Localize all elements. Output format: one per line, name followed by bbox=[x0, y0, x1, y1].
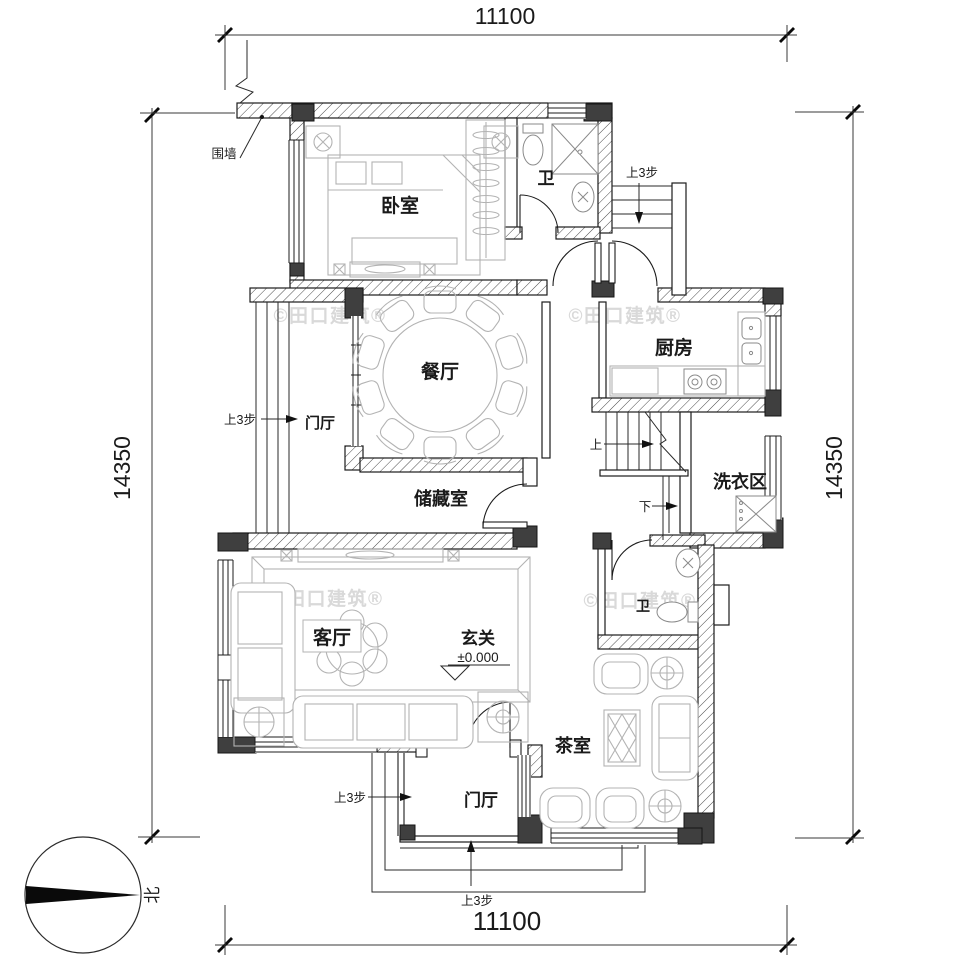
shower bbox=[552, 124, 598, 174]
exterior-shaft bbox=[714, 585, 729, 625]
door-storage bbox=[483, 484, 527, 528]
toilet-top bbox=[523, 135, 543, 165]
window-tea-south bbox=[551, 827, 678, 844]
label-dining: 餐厅 bbox=[421, 360, 459, 383]
dim-left-value: 14350 bbox=[109, 436, 135, 500]
label-bedroom: 卧室 bbox=[381, 194, 419, 217]
door-corridor-left bbox=[553, 241, 601, 286]
furniture-living bbox=[231, 549, 530, 748]
label-kitchen: 厨房 bbox=[655, 336, 693, 359]
wardrobe bbox=[466, 120, 505, 260]
window-kitchen-east bbox=[764, 316, 782, 390]
north-compass: 北 bbox=[25, 837, 162, 953]
staircase bbox=[600, 412, 688, 540]
label-steps-bottom-left: 上3步 bbox=[334, 791, 366, 805]
tv-cabinet bbox=[281, 549, 459, 562]
screen-dining-west bbox=[351, 316, 361, 446]
door-bath-lower bbox=[612, 540, 652, 580]
break-symbol bbox=[236, 40, 253, 103]
label-living: 客厅 bbox=[313, 626, 351, 649]
tea-armchair-top bbox=[594, 654, 648, 694]
door-corridor-right bbox=[609, 241, 657, 286]
toilet-tank-top bbox=[523, 124, 543, 133]
door-bath-top bbox=[520, 195, 558, 233]
label-entry: 玄关 bbox=[461, 628, 495, 648]
tea-armchair-bottom-1 bbox=[540, 788, 590, 828]
fixtures-bath-top bbox=[523, 124, 598, 212]
tea-plant-top bbox=[651, 657, 683, 689]
label-north: 北 bbox=[143, 887, 162, 904]
label-steps-bottom-center: 上3步 bbox=[461, 894, 493, 908]
toilet-tank-lower bbox=[688, 602, 698, 622]
label-stairs-up: 上 bbox=[590, 438, 603, 452]
label-tea-room: 茶室 bbox=[555, 735, 591, 756]
stove bbox=[684, 369, 726, 394]
dimension-bottom: 11100 bbox=[215, 905, 797, 955]
bed-bench bbox=[352, 238, 457, 264]
dimension-top: 11100 bbox=[215, 3, 797, 90]
label-fence: 围墙 bbox=[211, 147, 236, 161]
label-foyer-left: 门厅 bbox=[305, 414, 335, 432]
dim-bottom-value: 11100 bbox=[473, 906, 541, 936]
label-elevation: ±0.000 bbox=[457, 650, 498, 665]
dim-right-value: 14350 bbox=[821, 436, 847, 500]
tea-plant-bottom bbox=[649, 790, 681, 822]
window-foyer-east bbox=[517, 755, 531, 817]
label-foyer-bottom: 门厅 bbox=[464, 790, 498, 810]
dim-top-value: 11100 bbox=[475, 3, 536, 29]
label-bath-top: 卫 bbox=[538, 169, 555, 188]
fence-wall bbox=[237, 103, 292, 118]
fixtures-bath-lower bbox=[657, 549, 700, 622]
kitchen-cabinet bbox=[612, 368, 658, 394]
floor-plan-page: 11100 11100 14350 14350 ©田口建筑® ©田口建筑® ©田… bbox=[0, 0, 960, 960]
tea-table bbox=[604, 710, 640, 766]
toilet-lower bbox=[657, 602, 687, 622]
label-laundry: 洗衣区 bbox=[713, 471, 767, 492]
sofa-left bbox=[231, 583, 295, 713]
label-steps-left: 上3步 bbox=[224, 413, 256, 427]
sofa-bottom bbox=[293, 696, 473, 748]
watermark-1: ©田口建筑® bbox=[274, 304, 387, 327]
label-storage: 储藏室 bbox=[413, 488, 468, 509]
compass-needle bbox=[26, 886, 140, 904]
floor-plan-drawing: 11100 11100 14350 14350 ©田口建筑® ©田口建筑® ©田… bbox=[0, 0, 960, 960]
furniture-laundry bbox=[736, 496, 776, 532]
watermark-2: ©田口建筑® bbox=[569, 304, 682, 327]
label-bath-lower: 卫 bbox=[636, 598, 650, 614]
label-stairs-down: 下 bbox=[639, 500, 652, 514]
label-steps-top-right: 上3步 bbox=[626, 166, 658, 180]
window-bath-top bbox=[548, 102, 586, 119]
tea-armchair-bottom-2 bbox=[596, 788, 644, 828]
dimension-right: 14350 bbox=[795, 105, 864, 844]
side-table-plant-right bbox=[478, 692, 528, 742]
tea-sofa-right bbox=[652, 696, 698, 780]
window-bedroom-west bbox=[288, 140, 305, 263]
dimension-left: 14350 bbox=[109, 108, 235, 844]
